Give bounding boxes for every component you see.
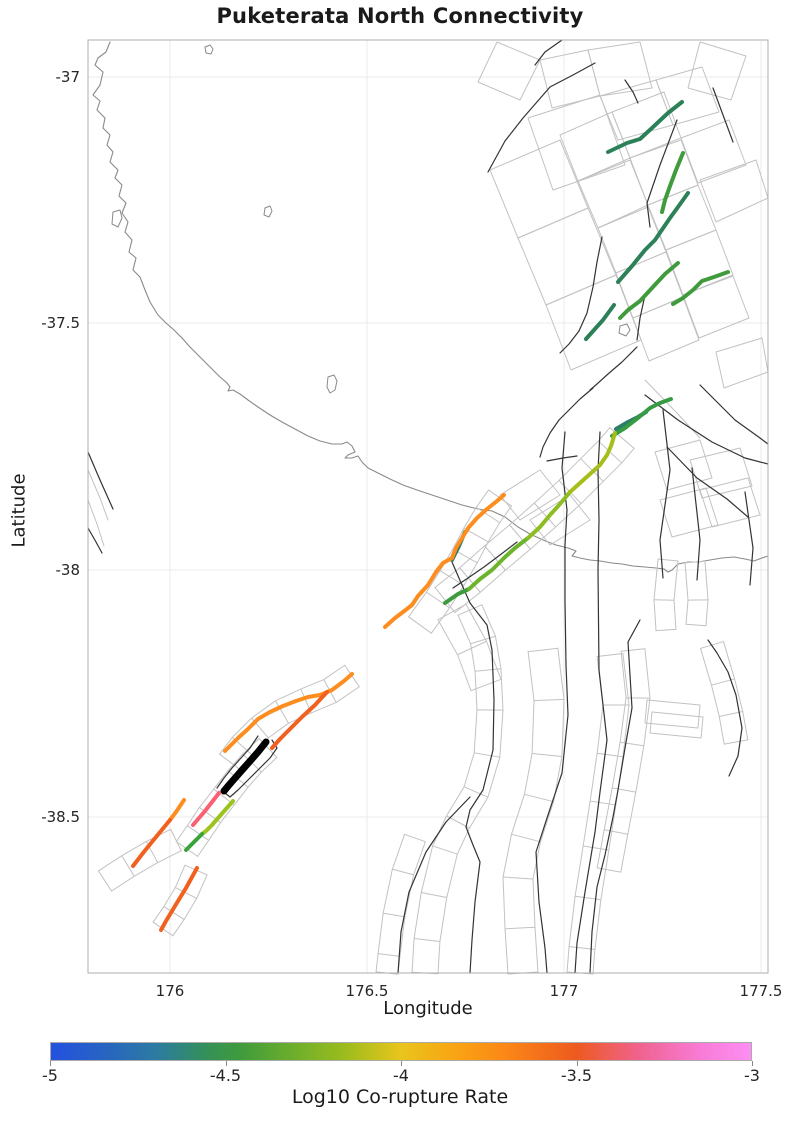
y-axis-label: Latitude — [9, 456, 30, 566]
fault-chain-edge — [705, 561, 708, 626]
rupture-segment-ne-seagreen-c — [618, 193, 688, 282]
fault-chain-rung — [503, 877, 533, 879]
fault-chain-edge — [533, 648, 564, 972]
page-title: Puketerata North Connectivity — [0, 4, 800, 28]
fault-patch — [660, 488, 718, 537]
fault-patch — [528, 95, 625, 190]
fault-chain-edge — [621, 649, 650, 872]
colorbar-tick-label: -3 — [744, 1066, 760, 1085]
fault-patch — [588, 42, 652, 96]
fault-trace — [667, 447, 748, 517]
fault-chain-edge — [593, 653, 629, 974]
fault-chain-edge — [466, 604, 501, 679]
fault-chain-rung — [383, 913, 405, 917]
fault-chain-rung — [421, 892, 446, 897]
fault-chain-rung — [575, 896, 601, 900]
rupture-segment-main-trace-chartreuse-lo — [469, 538, 528, 589]
fault-chain-edge — [435, 428, 610, 588]
x-axis-label: Longitude — [88, 998, 768, 1019]
fault-patch — [690, 448, 752, 498]
rupture-segment-puketerata-south-red-orange — [161, 868, 197, 930]
fault-trace — [547, 456, 577, 461]
fault-chain-rung — [474, 753, 500, 757]
fault-patch — [578, 160, 648, 228]
fault-trace — [708, 640, 742, 776]
colorbar-label: Log10 Co-rupture Rate — [0, 1086, 800, 1108]
fault-chain-rung — [378, 954, 400, 957]
fault-chain-rung — [524, 794, 553, 801]
fault-chain-rung — [612, 788, 636, 792]
fault-chain-rung — [620, 742, 644, 746]
fault-patch — [616, 252, 683, 318]
fault-chain-edge — [503, 652, 534, 974]
fault-trace — [645, 395, 768, 464]
plot-frame — [88, 40, 768, 973]
fault-chain-rung — [438, 604, 466, 620]
fault-trace — [398, 797, 470, 973]
fault-chain-rung — [414, 939, 440, 942]
fault-patch — [700, 478, 760, 527]
fault-chain-rung — [621, 649, 645, 651]
fault-chain-edge — [685, 563, 688, 624]
fault-chain-rung — [392, 869, 413, 875]
fault-patch — [650, 712, 703, 738]
fault-chain-edge — [398, 842, 425, 975]
colorbar-tick-mark — [577, 1061, 578, 1066]
fault-trace — [590, 620, 640, 973]
fault-trace — [540, 388, 593, 457]
colorbar-tick-label: -4.5 — [210, 1066, 241, 1085]
fault-patch-line — [88, 470, 108, 520]
fault-chain-rung — [597, 653, 623, 656]
fault-trace — [660, 410, 670, 578]
fault-patch — [688, 42, 746, 100]
fault-chain-edge — [438, 620, 471, 691]
fault-chain-rung — [532, 753, 562, 756]
rupture-segment-main-trace-green-tip — [445, 589, 469, 603]
x-tick-label: 177 — [550, 982, 579, 1000]
fault-patch — [490, 140, 588, 238]
fault-chain-rung — [433, 846, 458, 854]
y-tick-label: -37 — [8, 68, 80, 86]
colorbar-tick-mark — [50, 1061, 51, 1066]
fault-patch — [540, 50, 600, 108]
x-tick-label: 176.5 — [346, 982, 389, 1000]
fault-chain-rung — [597, 753, 623, 756]
fault-patch — [612, 92, 681, 158]
x-tick-label: 177.5 — [740, 982, 783, 1000]
fault-chain-rung — [604, 830, 628, 834]
fault-chain-rung — [98, 871, 111, 891]
fault-patch — [683, 276, 749, 338]
rupture-segment-junction-green — [612, 399, 671, 436]
fault-patch — [600, 80, 673, 140]
rupture-segment-ne-seagreen-f — [586, 305, 614, 339]
fault-chain-rung — [654, 600, 674, 601]
fault-trace — [452, 562, 494, 973]
island-outline — [205, 45, 213, 54]
fault-chain-rung — [528, 648, 558, 652]
fault-chain-rung — [405, 834, 426, 841]
island-outline — [264, 206, 272, 217]
fault-chain-rung — [464, 787, 488, 797]
y-tick-label: -37.5 — [8, 314, 80, 332]
y-tick-label: -38 — [8, 561, 80, 579]
island-outline — [619, 324, 630, 336]
fault-chain-edge — [674, 561, 678, 629]
colorbar-tick-mark — [226, 1061, 227, 1066]
fault-chain-rung — [590, 801, 616, 805]
fault-chain-edge — [455, 448, 634, 612]
fault-chain-rung — [171, 829, 182, 850]
fault-chain-rung — [686, 624, 706, 626]
fault-chain-edge — [220, 665, 345, 754]
fault-trace — [700, 385, 768, 444]
fault-chain-edge — [412, 615, 477, 972]
fault-chain-rung — [656, 629, 676, 630]
island-outline — [112, 210, 122, 227]
figure-root: Puketerata North Connectivity Longitude … — [0, 0, 800, 1122]
colorbar-gradient — [50, 1042, 752, 1061]
fault-patch-line — [88, 500, 104, 546]
fault-chain-rung — [583, 846, 609, 850]
fault-trace — [745, 492, 753, 585]
fault-patch — [478, 42, 540, 100]
fault-chain-edge — [724, 642, 748, 740]
fault-chain-edge — [700, 648, 724, 744]
fault-chain-rung — [409, 617, 432, 633]
fault-trace — [590, 347, 637, 390]
fault-patch — [716, 338, 768, 388]
fault-chain-rung — [724, 740, 748, 744]
rupture-segment-puketerata-green — [186, 834, 202, 850]
fault-chain-rung — [511, 834, 540, 842]
fault-patch — [681, 120, 746, 183]
fault-trace — [692, 468, 700, 580]
island-outline — [327, 375, 337, 393]
fault-chain-rung — [505, 927, 535, 929]
colorbar-tick-label: -4 — [393, 1066, 409, 1085]
rupture-segment-puketerata-orange-arc — [225, 674, 352, 751]
fault-chain-rung — [534, 699, 564, 700]
colorbar-tick-mark — [401, 1061, 402, 1066]
fault-trace — [713, 88, 733, 142]
colorbar-tick-label: -3.5 — [561, 1066, 592, 1085]
fault-trace — [560, 237, 602, 353]
y-tick-label: -38.5 — [8, 808, 80, 826]
fault-patch — [518, 208, 616, 305]
x-tick-label: 176 — [156, 982, 185, 1000]
colorbar-tick-mark — [752, 1061, 753, 1066]
connectivity-map-canvas — [0, 0, 800, 1122]
colorbar-tick-label: -5 — [42, 1066, 58, 1085]
rupture-segment-central-orange — [385, 495, 504, 627]
